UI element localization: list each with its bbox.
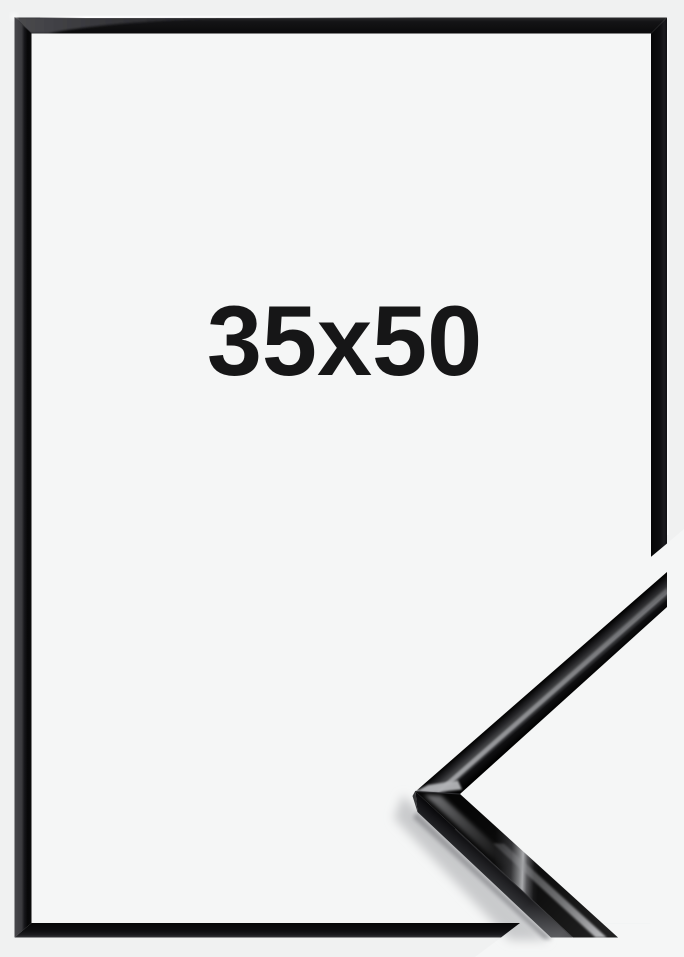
svg-text:35x50: 35x50 bbox=[207, 285, 482, 396]
